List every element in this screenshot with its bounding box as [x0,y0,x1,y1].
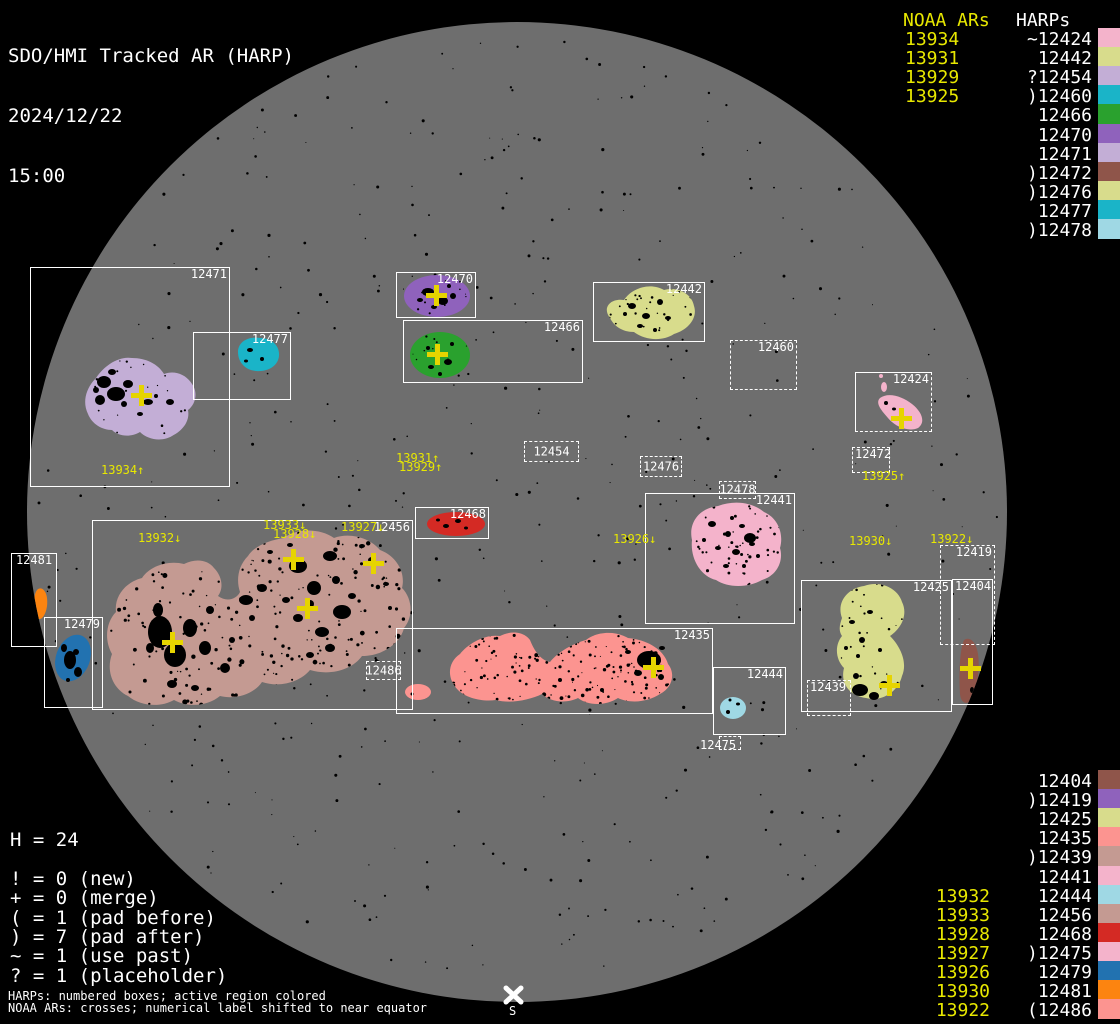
noaa-ar-label: 13925↑ [862,470,905,483]
harp-color-swatch [1098,47,1120,67]
harp-color-swatch [1098,770,1120,790]
harp-color-swatch [1098,827,1120,847]
harp-box-label: 12444 [747,668,783,681]
cross-v-bar [371,553,376,574]
noaa-cross-marker [879,675,900,696]
harp-plot-screen: SDO/HMI Tracked AR (HARP) 2024/12/22 15:… [0,0,1120,1024]
harp-box: 12479 [44,617,103,708]
noaa-cross-marker [643,657,664,678]
harp-color-swatch [1098,808,1120,828]
cross-v-bar [651,657,656,678]
cross-v-bar [887,675,892,696]
harp-color-swatch [1098,789,1120,809]
harp-color-swatch [1098,162,1120,182]
harp-box-label: 12442 [666,283,702,296]
noaa-ar-label: 13926↓ [613,533,656,546]
harp-color-swatch [1098,980,1120,1000]
harp-box: 12477 [193,332,291,400]
harp-color-swatch [1098,181,1120,201]
noaa-ar-label: 13929↑ [399,461,442,474]
noaa-ar-label: 13934↑ [101,464,144,477]
harp-box-label: 12476 [643,460,679,473]
harp-color-swatch [1098,85,1120,105]
harp-box-label: 12481 [16,554,52,567]
harp-box-label: 12454 [533,445,569,458]
harp-box: 12456 [92,520,413,710]
noaa-ar-label: 13922↓ [930,533,973,546]
harp-color-swatch [1098,124,1120,144]
noaa-ar-label: 13927↓ [341,521,384,534]
cross-v-bar [899,408,904,429]
harp-box-label: 12460 [758,341,794,354]
harp-box: 12419 [940,545,995,645]
solar-disk [27,22,1007,1002]
harp-color-swatch [1098,923,1120,943]
harp-box: 12460 [730,340,797,390]
cross-v-bar [170,632,175,653]
harp-color-swatch [1098,28,1120,48]
harp-box: 12444 [713,667,786,735]
harp-color-swatch [1098,961,1120,981]
noaa-cross-marker [162,632,183,653]
cross-v-bar [968,658,973,679]
harp-color-swatch [1098,904,1120,924]
harp-color-swatch [1098,866,1120,886]
harp-box-label: 12475 [700,739,736,752]
noaa-cross-marker [960,658,981,679]
cross-v-bar [435,344,440,365]
harp-color-swatch [1098,66,1120,86]
harp-box: 12454 [524,441,579,462]
harp-color-swatch [1098,999,1120,1019]
harp-box: 12441 [645,493,795,624]
harp-box: 12476 [640,456,682,477]
harp-box: 12442 [593,282,705,342]
harp-color-swatch [1098,942,1120,962]
harp-color-swatch [1098,200,1120,220]
harp-box-label: 12466 [544,321,580,334]
harp-box-label: 12472 [855,448,891,461]
harp-box-label: 12471 [191,268,227,281]
harp-box-label: 12441 [756,494,792,507]
noaa-cross-marker [426,285,447,306]
harp-box: 12468 [415,507,489,539]
noaa-cross-marker [297,598,318,619]
harp-box-label: 12435 [674,629,710,642]
harp-box-label: 12479 [64,618,100,631]
noaa-cross-marker [427,344,448,365]
harp-color-swatch [1098,219,1120,239]
noaa-cross-marker [363,553,384,574]
cross-v-bar [291,549,296,570]
harp-box: 12425 [801,580,952,712]
harp-color-swatch [1098,885,1120,905]
cross-v-bar [139,385,144,406]
noaa-cross-marker [283,549,304,570]
noaa-ar-label: 13928↓ [273,528,316,541]
noaa-cross-marker [891,408,912,429]
noaa-ar-label: 13930↓ [849,535,892,548]
solar-disk-scene [0,0,1120,1024]
cross-v-bar [305,598,310,619]
harp-color-swatch [1098,846,1120,866]
harp-box-label: 12468 [450,508,486,521]
cross-v-bar [434,285,439,306]
noaa-cross-marker [131,385,152,406]
harp-color-swatch [1098,143,1120,163]
harp-box-label: 12419 [956,546,992,559]
noaa-ar-label: 13932↓ [138,532,181,545]
harp-box-label: 12424 [893,373,929,386]
harp-box: 12435 [396,628,713,714]
harp-color-swatch [1098,104,1120,124]
harp-box-label: 12477 [252,333,288,346]
